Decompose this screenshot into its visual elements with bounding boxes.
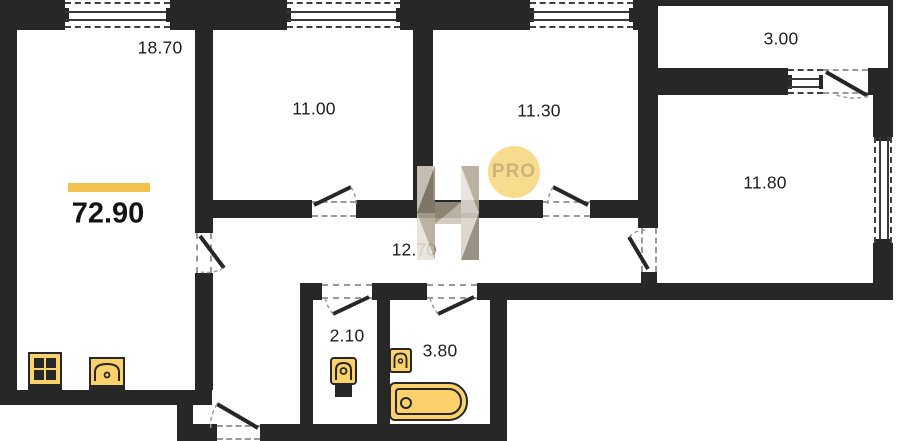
kitchen-sink-icon (89, 357, 125, 387)
pro-badge: PRO (488, 146, 540, 198)
room-label-mid-left: 11.00 (292, 99, 336, 120)
total-area-label: 72.90 (72, 198, 145, 231)
total-area-accent-bar (68, 183, 150, 192)
door-room-11-80 (629, 230, 648, 269)
kitchen-sink-bowl (91, 359, 123, 385)
door-room-11-00 (314, 187, 356, 206)
bathtub-drain (400, 397, 412, 409)
stove-base (28, 386, 62, 392)
stove-burner (34, 370, 44, 380)
room-label-bathroom: 3.80 (423, 341, 458, 362)
door-bathroom (430, 297, 474, 314)
door-room-11-30 (548, 187, 588, 206)
toilet-bowl (332, 359, 355, 383)
stove-burner (34, 358, 44, 368)
room-label-mid-right: 11.30 (517, 101, 561, 122)
room-label-living-kitchen: 18.70 (138, 38, 183, 59)
room-label-right: 11.80 (743, 173, 787, 194)
toilet-icon (330, 357, 357, 385)
watermark-h-logo (417, 166, 479, 260)
door-balcony (826, 72, 868, 98)
stove-icon (28, 352, 62, 386)
pro-badge-label: PRO (492, 161, 536, 183)
door-living-room (200, 236, 224, 273)
bathtub-icon (389, 382, 468, 421)
room-label-balcony: 3.00 (764, 29, 799, 50)
washbasin-bowl (391, 350, 410, 371)
floor-plan: 18.70 11.00 11.30 3.00 11.80 12.70 2.10 … (0, 0, 900, 441)
stove-burner (46, 358, 56, 368)
door-wc (325, 297, 369, 314)
kitchen-sink-base (89, 387, 125, 392)
toilet-base (335, 383, 352, 397)
room-label-wc: 2.10 (330, 326, 365, 347)
washbasin-icon (389, 348, 412, 373)
door-entrance (211, 404, 258, 429)
stove-burner (46, 370, 56, 380)
